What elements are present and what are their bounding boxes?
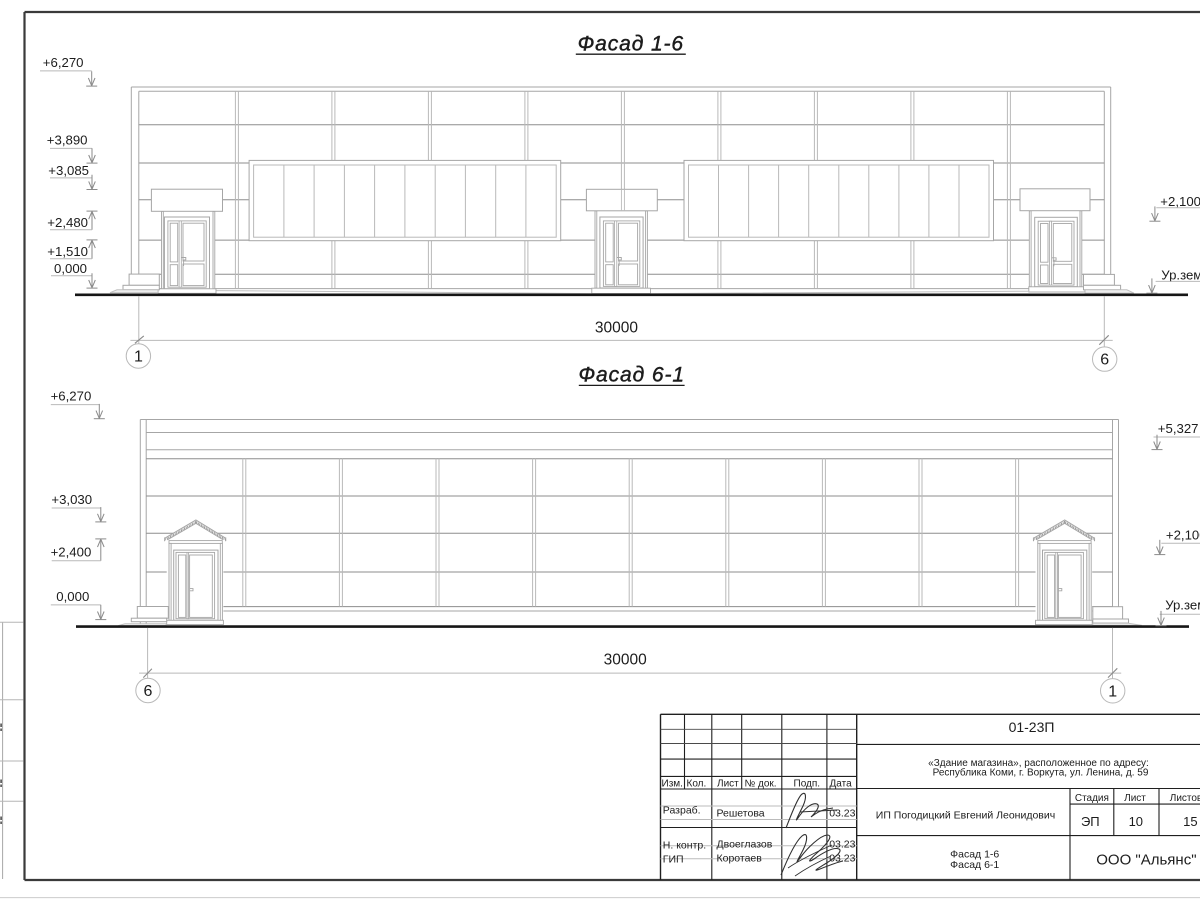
svg-text:Двоеглазов: Двоеглазов (717, 839, 773, 851)
svg-text:№ док.: № док. (745, 778, 777, 789)
svg-text:Фасад 1-6: Фасад 1-6 (578, 33, 684, 56)
svg-text:03.23: 03.23 (829, 808, 855, 820)
svg-text:ИП Погодицкий Евгений Леонидов: ИП Погодицкий Евгений Леонидович (876, 809, 1055, 821)
svg-text:10: 10 (1129, 814, 1143, 829)
svg-text:Разраб.: Разраб. (663, 805, 701, 817)
svg-text:0,000: 0,000 (54, 261, 87, 276)
svg-text:+6,270: +6,270 (51, 389, 92, 404)
svg-text:6: 6 (1100, 352, 1109, 369)
svg-text:Стадия: Стадия (1075, 793, 1109, 804)
svg-text:Листов: Листов (1170, 793, 1200, 804)
svg-text:Лист: Лист (717, 778, 739, 789)
svg-text:15: 15 (1183, 814, 1197, 829)
svg-text:0,000: 0,000 (56, 589, 89, 604)
svg-text:Решетова: Решетова (717, 808, 765, 820)
svg-text:+3,085: +3,085 (48, 163, 89, 178)
svg-text:1: 1 (134, 349, 143, 366)
svg-text:+3,030: +3,030 (51, 492, 92, 507)
svg-text:Республика Коми, г. Воркута, у: Республика Коми, г. Воркута, ул. Ленина,… (933, 767, 1149, 779)
svg-text:ЭП: ЭП (1081, 814, 1100, 829)
svg-text:+1,510: +1,510 (47, 244, 88, 259)
svg-text:ГИП: ГИП (663, 853, 684, 865)
svg-text:+3,890: +3,890 (47, 133, 88, 148)
svg-text:Фасад 6-1: Фасад 6-1 (950, 859, 999, 871)
svg-text:+5,327: +5,327 (1158, 421, 1199, 436)
svg-text:+6,270: +6,270 (43, 55, 84, 70)
svg-text:Лист: Лист (1124, 793, 1146, 804)
svg-text:ООО "Альянс": ООО "Альянс" (1096, 851, 1196, 868)
svg-text:Дата: Дата (830, 778, 853, 789)
svg-text:+2,400: +2,400 (51, 545, 92, 560)
svg-text:Изм.: Изм. (662, 778, 683, 789)
svg-text:30000: 30000 (604, 652, 647, 669)
svg-text:Подп.: Подп. (794, 778, 821, 789)
svg-text:6: 6 (144, 683, 153, 700)
svg-text:Ур.зем: Ур.зем (1165, 597, 1200, 612)
svg-text:Фасад 6-1: Фасад 6-1 (578, 364, 684, 387)
svg-text:Н. контр.: Н. контр. (663, 839, 706, 851)
svg-text:+2,480: +2,480 (47, 215, 88, 230)
svg-text:30000: 30000 (595, 319, 638, 336)
svg-text:1: 1 (1108, 683, 1117, 700)
svg-text:+2,100: +2,100 (1166, 527, 1200, 542)
svg-text:Кол.: Кол. (687, 778, 707, 789)
svg-text:Коротаев: Коротаев (717, 853, 763, 865)
svg-text:+2,100: +2,100 (1160, 194, 1200, 209)
svg-text:Ур.зем: Ур.зем (1161, 268, 1200, 283)
svg-text:01-23П: 01-23П (1009, 719, 1055, 735)
